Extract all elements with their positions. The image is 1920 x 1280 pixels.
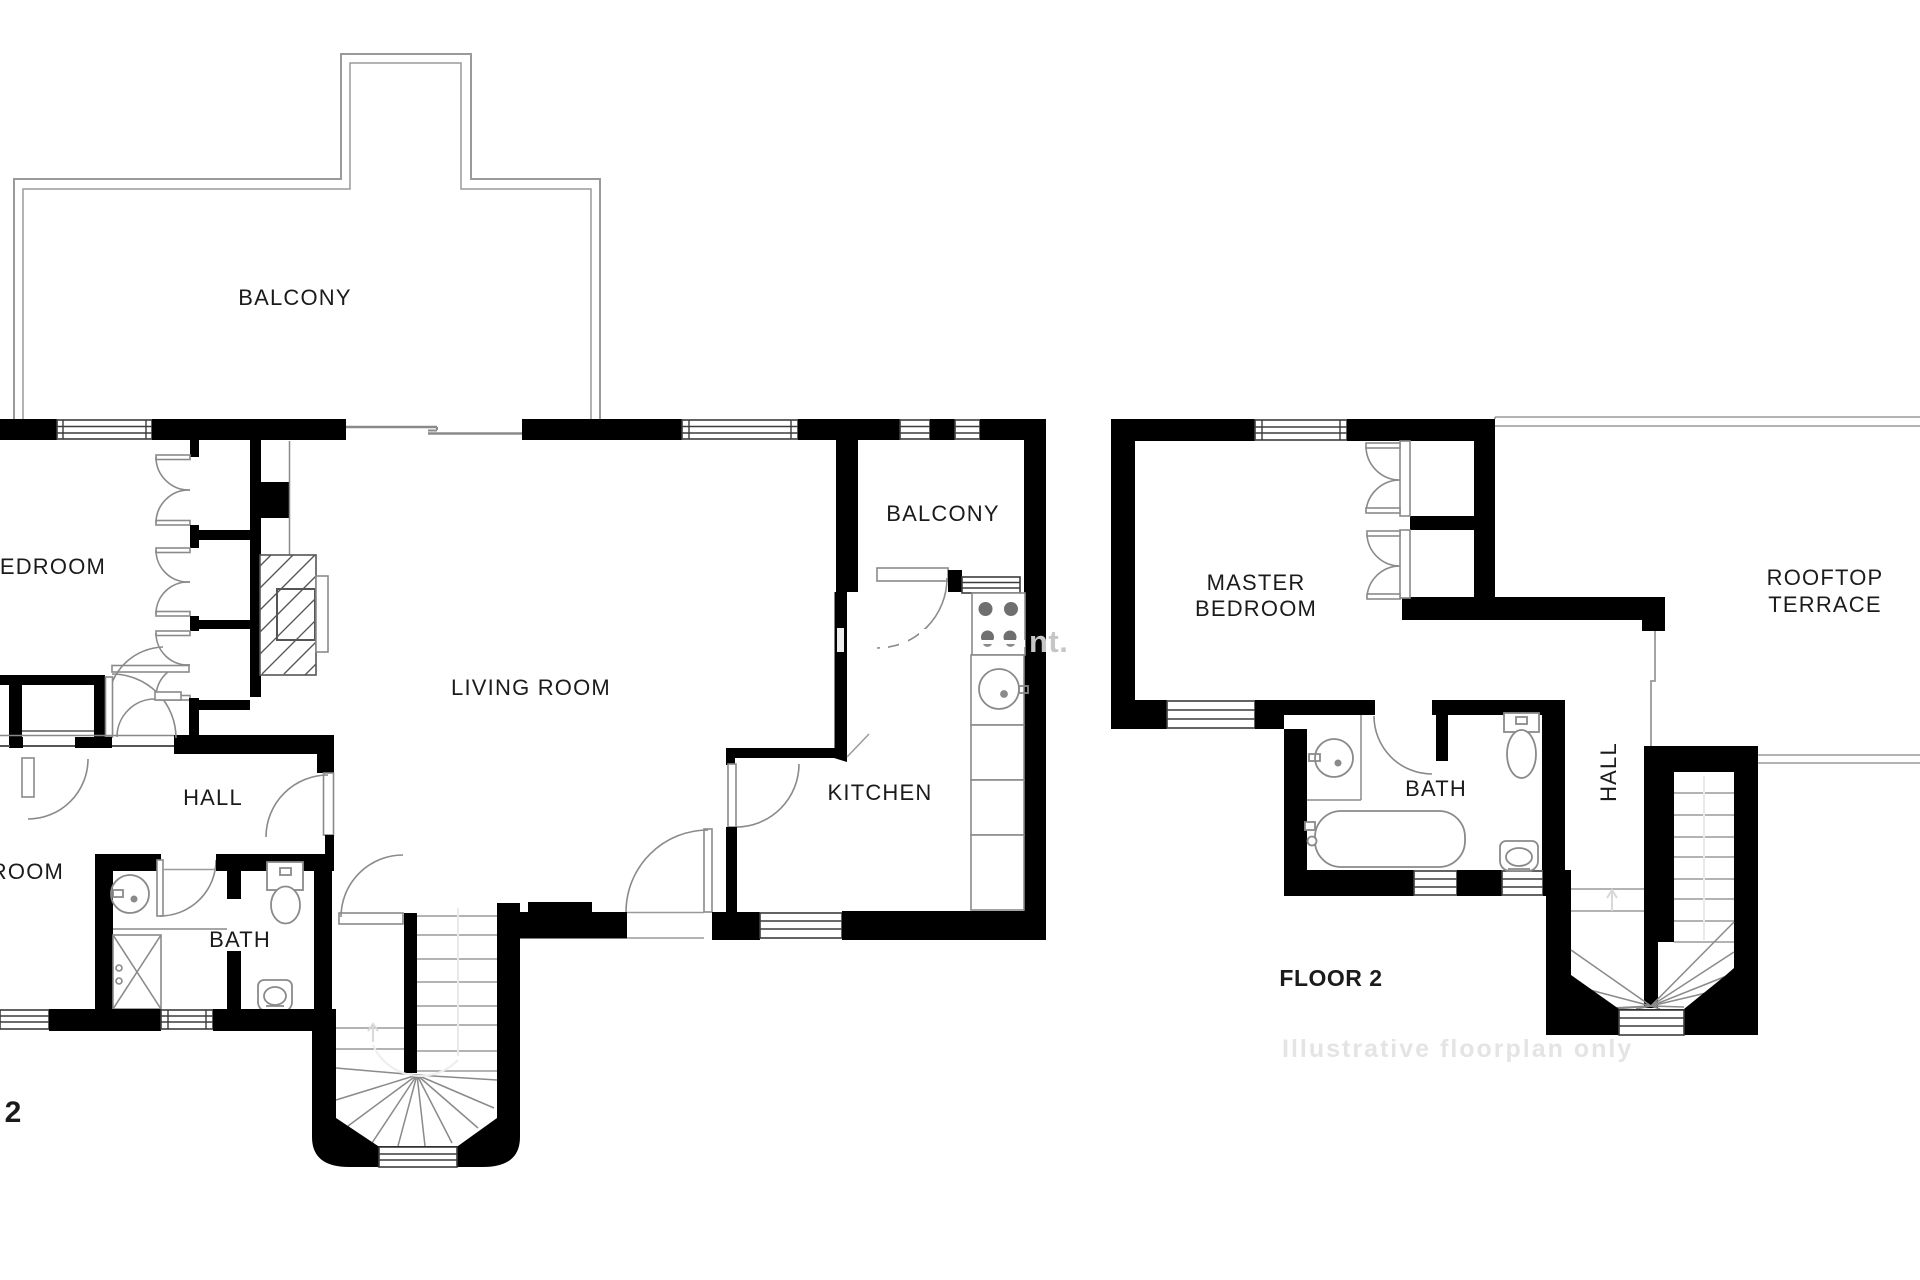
svg-text:LIVING ROOM: LIVING ROOM	[451, 675, 611, 700]
svg-text:BALCONY: BALCONY	[238, 285, 352, 310]
svg-text:KITCHEN: KITCHEN	[828, 780, 933, 805]
svg-text:BEDROOM: BEDROOM	[1195, 596, 1317, 621]
svg-text:FLOOR 2: FLOOR 2	[1279, 965, 1382, 991]
svg-text:BEDROOM: BEDROOM	[0, 554, 106, 579]
svg-text:BALCONY: BALCONY	[886, 501, 1000, 526]
svg-text:ROOFTOP: ROOFTOP	[1767, 565, 1884, 590]
svg-text:2: 2	[5, 1096, 22, 1129]
svg-text:MASTER: MASTER	[1207, 570, 1306, 595]
svg-text:HALL: HALL	[183, 785, 243, 810]
svg-text:HALL: HALL	[1596, 742, 1621, 802]
svg-text:Illustrative floorplan only: Illustrative floorplan only	[1282, 1035, 1633, 1063]
svg-text:TERRACE: TERRACE	[1768, 592, 1882, 617]
svg-text:BATH: BATH	[1405, 776, 1467, 801]
svg-text:BEDROOM: BEDROOM	[0, 859, 64, 884]
svg-text:nt.: nt.	[1029, 624, 1068, 659]
svg-text:BATH: BATH	[209, 927, 271, 952]
